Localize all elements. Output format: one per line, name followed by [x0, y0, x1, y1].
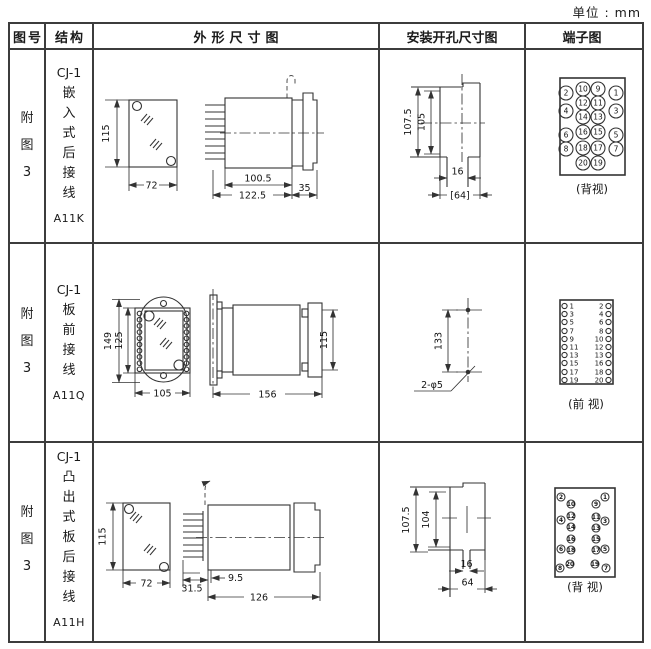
- front-view: 115 72: [98, 503, 171, 590]
- svg-text:6: 6: [564, 131, 569, 140]
- structure-cell-row3: CJ-1 凸出式板后接线 A11H: [46, 443, 92, 635]
- svg-text:10: 10: [595, 335, 604, 343]
- svg-text:1: 1: [614, 89, 619, 98]
- screw-hole: [133, 102, 142, 111]
- dim-label: 105: [153, 389, 171, 400]
- svg-text:16: 16: [595, 359, 604, 367]
- svg-text:10: 10: [567, 502, 575, 508]
- terminal-row: 78: [562, 327, 611, 335]
- document-page: 单位 : mm 图号 结构 外形尺寸图 安装开孔尺寸图 端子图 附图3 CJ-1…: [0, 0, 651, 649]
- svg-text:1: 1: [603, 495, 607, 501]
- mounting-drawing-a11q: 133 2-φ5: [378, 242, 524, 441]
- structure-label: 板前接线: [61, 301, 78, 381]
- svg-text:5: 5: [614, 131, 619, 140]
- svg-text:9: 9: [570, 335, 574, 343]
- centerlines: [442, 506, 491, 533]
- outline-drawing-a11k: 115 72 100.5 122.5 35: [92, 48, 378, 242]
- terminal-pins: [205, 105, 225, 159]
- svg-text:20: 20: [578, 159, 588, 168]
- svg-text:3: 3: [570, 310, 574, 318]
- terminal-pin: 17: [592, 546, 600, 554]
- svg-text:19: 19: [570, 376, 579, 384]
- svg-text:15: 15: [593, 128, 603, 137]
- terminal-pin: 13: [591, 110, 605, 124]
- svg-text:8: 8: [564, 145, 569, 154]
- dim-label: 35: [298, 183, 310, 194]
- glass-hatch: [160, 338, 172, 349]
- svg-text:2: 2: [564, 89, 569, 98]
- dim-label: 72: [140, 579, 152, 590]
- dim-label: 125: [114, 331, 125, 349]
- terminal-pin: 20: [576, 156, 590, 170]
- svg-text:8: 8: [599, 327, 603, 335]
- svg-text:5: 5: [570, 318, 574, 326]
- svg-text:3: 3: [603, 519, 607, 525]
- side-view: 115 156: [210, 289, 338, 401]
- handle-centerline: [287, 76, 295, 98]
- svg-text:11: 11: [593, 99, 603, 108]
- dim-label: 16: [451, 167, 463, 178]
- screw-hole: [167, 157, 176, 166]
- terminal-pin: 19: [591, 156, 605, 170]
- front-view: 115 72: [101, 100, 177, 192]
- dim-label: [64]: [450, 191, 470, 202]
- view-label: (前 视): [568, 397, 604, 411]
- terminal-pin: 12: [567, 512, 575, 520]
- svg-text:17: 17: [593, 144, 603, 153]
- terminal-pin: 6: [557, 545, 565, 553]
- dim-label: 107.5: [401, 506, 412, 533]
- dim-label: 122.5: [239, 191, 266, 202]
- svg-text:11: 11: [570, 343, 579, 351]
- svg-text:15: 15: [592, 537, 600, 543]
- svg-text:8: 8: [558, 566, 562, 572]
- svg-text:7: 7: [614, 145, 619, 154]
- terminal-row: 12: [562, 302, 611, 310]
- outline-drawing-a11h: 115 72 31.5 9.5 126: [92, 441, 378, 637]
- terminal-pin: 3: [601, 517, 609, 525]
- terminal-row: 1313: [562, 351, 611, 359]
- terminal-pin: 3: [609, 104, 623, 118]
- screw-hole: [125, 505, 134, 514]
- terminal-row: 56: [562, 318, 611, 326]
- terminal-row: 34: [562, 310, 611, 318]
- svg-text:19: 19: [591, 562, 599, 568]
- fig-cell-row2: 附图3: [10, 244, 44, 439]
- svg-text:3: 3: [614, 107, 619, 116]
- terminal-pin: 15: [591, 125, 605, 139]
- glass-hatch: [130, 512, 142, 523]
- header-fig: 图号: [10, 24, 44, 48]
- svg-text:14: 14: [567, 525, 575, 531]
- dim-label: 115: [98, 527, 109, 545]
- terminal-pin: 15: [592, 535, 600, 543]
- model-label: CJ-1: [57, 282, 81, 297]
- svg-text:17: 17: [570, 368, 579, 376]
- svg-text:19: 19: [593, 159, 603, 168]
- terminal-pin: 19: [591, 560, 599, 568]
- mounting-plate: [140, 297, 187, 382]
- dim-label: 2-φ5: [421, 380, 443, 391]
- terminal-row: 1112: [562, 343, 611, 351]
- svg-text:9: 9: [594, 502, 598, 508]
- svg-text:16: 16: [578, 128, 588, 137]
- structure-cell-row1: CJ-1 嵌入式后接线 A11K: [46, 50, 92, 240]
- side-view: 100.5 122.5 35: [205, 76, 324, 202]
- glass-hatch: [150, 139, 162, 150]
- svg-text:12: 12: [567, 514, 575, 520]
- svg-text:10: 10: [578, 85, 588, 94]
- svg-text:20: 20: [566, 562, 574, 568]
- dim-label: 31.5: [181, 584, 202, 595]
- svg-text:18: 18: [595, 368, 604, 376]
- svg-text:5: 5: [603, 547, 607, 553]
- terminal-pin: 8: [559, 142, 573, 156]
- terminal-pin: 4: [559, 104, 573, 118]
- svg-text:11: 11: [592, 515, 600, 521]
- model-label: CJ-1: [57, 449, 81, 464]
- terminal-pin: 7: [602, 564, 610, 572]
- terminal-pin: 16: [567, 535, 575, 543]
- svg-text:7: 7: [570, 327, 574, 335]
- mounting-hole: [466, 308, 471, 313]
- svg-text:4: 4: [559, 518, 563, 524]
- structure-label: 凸出式板后接线: [61, 468, 78, 608]
- svg-text:4: 4: [564, 107, 569, 116]
- svg-text:13: 13: [592, 526, 600, 532]
- dim-label: 126: [250, 593, 268, 604]
- svg-text:13: 13: [595, 351, 604, 359]
- dim-label: 100.5: [244, 174, 271, 185]
- terminal-pin: 9: [591, 82, 605, 96]
- screw-hole: [161, 301, 167, 307]
- terminal-pin: 14: [576, 110, 590, 124]
- terminal-pin: 13: [592, 524, 600, 532]
- pull-direction-arrow: [205, 481, 210, 505]
- dim-label: 107.5: [403, 108, 414, 135]
- terminal-pin: 2: [557, 493, 565, 501]
- front-view: 149 125 105: [103, 297, 190, 400]
- dim-label: 72: [145, 181, 157, 192]
- svg-text:4: 4: [599, 310, 604, 318]
- terminal-pin: 11: [591, 96, 605, 110]
- svg-text:13: 13: [593, 113, 603, 122]
- svg-text:2: 2: [559, 495, 563, 501]
- terminal-pin: 8: [556, 564, 564, 572]
- terminal-pin: 20: [566, 560, 574, 568]
- terminal-pin: 6: [559, 128, 573, 142]
- terminal-pin: 9: [592, 500, 600, 508]
- terminal-pin: 18: [567, 546, 575, 554]
- svg-text:16: 16: [567, 537, 575, 543]
- svg-text:13: 13: [570, 351, 579, 359]
- terminal-pin: 1: [601, 493, 609, 501]
- dim-label: 115: [101, 124, 112, 142]
- terminal-pin: 2: [559, 86, 573, 100]
- fig-cell-row3: 附图3: [10, 443, 44, 635]
- terminal-pin: 5: [609, 128, 623, 142]
- svg-text:7: 7: [604, 566, 608, 572]
- terminal-drawing-a11k: 2 10 9 1 12 11 4 3 14 13 16 15 6 5 18 17…: [524, 48, 640, 242]
- terminal-pins: [183, 514, 203, 557]
- dim-label: 156: [258, 390, 276, 401]
- model-code: A11Q: [53, 389, 85, 402]
- model-code: A11H: [53, 616, 85, 629]
- model-label: CJ-1: [57, 65, 81, 80]
- dim-label: 16: [460, 559, 472, 570]
- terminal-pin: 17: [591, 141, 605, 155]
- terminal-pin: 16: [576, 125, 590, 139]
- terminal-row: 1718: [562, 368, 611, 376]
- terminal-pin: 4: [557, 516, 565, 524]
- terminal-row: 910: [562, 335, 611, 343]
- unit-label: 单位 : mm: [572, 2, 641, 21]
- svg-text:12: 12: [578, 99, 588, 108]
- dim-label: 104: [421, 510, 432, 528]
- terminal-row: 1516: [562, 359, 611, 367]
- terminal-pin: 7: [609, 142, 623, 156]
- svg-text:2: 2: [599, 302, 603, 310]
- view-label: (背 视): [567, 580, 603, 594]
- dim-label: 9.5: [228, 573, 243, 584]
- dim-label: 105: [417, 113, 428, 131]
- fig-cell-row1: 附图3: [10, 50, 44, 240]
- svg-text:18: 18: [567, 548, 575, 554]
- header-outline: 外形尺寸图: [94, 24, 378, 48]
- svg-text:14: 14: [578, 113, 588, 122]
- glass-hatch: [154, 318, 166, 329]
- side-view: 31.5 9.5 126: [181, 481, 324, 604]
- svg-text:6: 6: [599, 318, 604, 326]
- terminal-pin: 1: [609, 86, 623, 100]
- svg-text:9: 9: [596, 85, 601, 94]
- dim-label: 115: [319, 331, 330, 349]
- structure-label: 嵌入式后接线: [61, 84, 78, 204]
- terminal-pin: 11: [592, 513, 600, 521]
- dim-label: 64: [461, 578, 473, 589]
- dim-label: 133: [434, 332, 445, 350]
- mounting-drawing-a11k: 107.5 105 16 [64]: [378, 48, 524, 242]
- svg-text:18: 18: [578, 144, 588, 153]
- outline-drawing-a11q: 149 125 105 115: [92, 242, 378, 441]
- glass-hatch: [144, 544, 156, 555]
- terminal-drawing-a11q: 12 34 56 78 910 1112 1313 1516 1718 1920…: [524, 242, 640, 441]
- svg-text:12: 12: [595, 343, 604, 351]
- mounting-drawing-a11h: 107.5 104 16 64: [378, 441, 524, 637]
- terminal-drawing-a11h: 2 1 10 9 12 11 4 3 14 13 16 15 6 18 17 5…: [524, 441, 640, 637]
- terminal-pin: 12: [576, 96, 590, 110]
- glass-hatch: [141, 114, 153, 125]
- terminal-pin: 10: [567, 500, 575, 508]
- header-structure: 结构: [46, 24, 92, 48]
- header-terminal: 端子图: [526, 24, 638, 48]
- header-mounting: 安装开孔尺寸图: [380, 24, 524, 48]
- spec-table: 图号 结构 外形尺寸图 安装开孔尺寸图 端子图 附图3 CJ-1 嵌入式后接线 …: [8, 22, 644, 643]
- view-label: (背视): [576, 182, 608, 196]
- svg-text:6: 6: [559, 547, 563, 553]
- terminal-pin: 5: [601, 545, 609, 553]
- terminal-pin: 14: [567, 523, 575, 531]
- svg-text:15: 15: [570, 359, 579, 367]
- svg-text:20: 20: [595, 376, 604, 384]
- svg-text:1: 1: [570, 302, 574, 310]
- terminal-row: 1920: [562, 376, 611, 384]
- terminal-pin: 18: [576, 141, 590, 155]
- dim-label: 149: [103, 332, 114, 350]
- structure-cell-row2: CJ-1 板前接线 A11Q: [46, 244, 92, 439]
- svg-text:17: 17: [592, 548, 600, 554]
- model-code: A11K: [54, 212, 85, 225]
- terminal-pin: 10: [576, 82, 590, 96]
